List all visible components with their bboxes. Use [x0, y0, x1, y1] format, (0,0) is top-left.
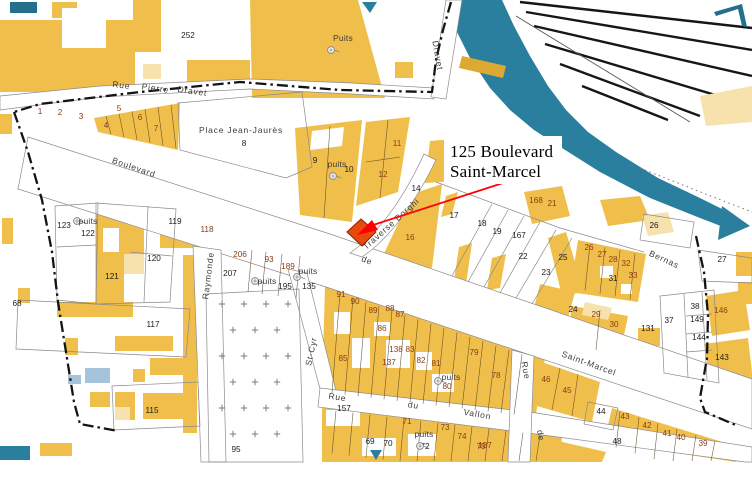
- parcel-number: 137: [382, 358, 396, 367]
- parcel-number: 131: [641, 324, 655, 333]
- parcel-number: 40: [676, 433, 686, 442]
- parcel-number: 1: [38, 107, 43, 116]
- water-triangle: [362, 2, 377, 13]
- parcel-number: 24: [568, 305, 578, 314]
- parcel-number: 143: [715, 353, 729, 362]
- parcel-number: 12: [378, 170, 388, 179]
- parcel-number: 138: [389, 345, 403, 354]
- parcel-number: 6: [138, 113, 143, 122]
- parcel-number: 48: [612, 437, 622, 446]
- parcel-number: 167: [512, 231, 526, 240]
- parcel-number: 69: [365, 437, 375, 446]
- parcel-number: 27: [717, 255, 727, 264]
- parcel-number: 9: [313, 156, 318, 165]
- parcel-number: 5: [117, 104, 122, 113]
- parcel-number: 123: [57, 221, 71, 230]
- parcel-number: 30: [609, 320, 619, 329]
- parcel-number: 45: [562, 386, 572, 395]
- well-label: Puits: [333, 33, 353, 43]
- parcel-number: 80: [442, 382, 452, 391]
- parcel-number: 46: [541, 375, 551, 384]
- street-label: de: [535, 429, 547, 442]
- parcel-number: 8: [242, 139, 247, 148]
- parcel-number: 21: [547, 199, 557, 208]
- parcel-number: 87: [395, 310, 405, 319]
- parcel-number: 37: [664, 316, 674, 325]
- map-page: 2521234567891011121314161718191671682122…: [0, 0, 752, 484]
- parcel-number: 31: [608, 274, 618, 283]
- parcel-number: 207: [223, 269, 237, 278]
- well-symbol: puits: [252, 276, 277, 286]
- block-11-12: [356, 117, 410, 206]
- parcel-number: 26: [649, 221, 659, 230]
- parcel-number: 44: [596, 407, 606, 416]
- parcel-number: 70: [383, 439, 393, 448]
- annotation-text-line1: 125 Boulevard: [450, 142, 553, 161]
- parcel-number: 32: [621, 259, 631, 268]
- parcel-number: 33: [628, 271, 638, 280]
- parcel-number: 115: [145, 406, 158, 415]
- parcel-number: 89: [368, 306, 378, 315]
- parcel-number: 29: [591, 310, 601, 319]
- street-label: du: [407, 399, 419, 411]
- parcel-number: 119: [168, 217, 181, 226]
- parcel-number: 26: [584, 243, 594, 252]
- parcel-number: 4: [104, 121, 109, 130]
- parcel-number: 157: [337, 404, 351, 413]
- parcel-number: 68: [12, 299, 22, 308]
- parcel-number: 144: [692, 333, 706, 342]
- parcel-number: 93: [264, 255, 274, 264]
- cemetery-crosses: [219, 301, 291, 437]
- annotation-text-line2: Saint-Marcel: [450, 162, 541, 181]
- parcel-number: 118: [200, 225, 213, 234]
- parcel-number: 117: [146, 320, 159, 329]
- parcel-number: 18: [477, 219, 487, 228]
- parcel-number: 19: [492, 227, 502, 236]
- parcel-number: 90: [350, 297, 360, 306]
- well-label: puits: [79, 216, 98, 226]
- parcel-number: 17: [449, 211, 459, 220]
- parcel-number: 78: [491, 371, 501, 380]
- parcel-number: 2: [58, 108, 63, 117]
- parcel-number: 146: [714, 306, 728, 315]
- parcel-number: 79: [469, 348, 479, 357]
- parcel-number: 28: [608, 255, 618, 264]
- parcel-number: 22: [518, 252, 528, 261]
- well-label: puits: [328, 159, 347, 169]
- parcel-number: 43: [620, 412, 630, 421]
- river-flow-arrow-icon: [718, 206, 750, 240]
- parcel-number: 83: [405, 345, 415, 354]
- place-jean-jaures-outline: [178, 92, 312, 178]
- parcel-number: 27: [597, 250, 607, 259]
- parcel-number: 38: [690, 302, 700, 311]
- parcel-number: 88: [385, 304, 395, 313]
- parcel-number: 82: [416, 356, 426, 365]
- pond: [85, 368, 110, 383]
- canal-river-water: [447, 0, 726, 228]
- well-symbol: puits: [74, 216, 98, 226]
- parcel-number: 122: [81, 229, 95, 238]
- parcel-number: 195: [278, 282, 292, 291]
- parcel-number: 41: [662, 429, 672, 438]
- street-label: Bernas: [648, 248, 681, 270]
- parcel-number: 11: [393, 139, 402, 148]
- parcel-number: 86: [377, 324, 387, 333]
- parcel-number: 25: [558, 253, 568, 262]
- parcel-number: 73: [440, 423, 450, 432]
- parcel-number: 189: [281, 262, 295, 271]
- parcel-number: 42: [642, 421, 652, 430]
- parcel-number: 206: [233, 250, 247, 259]
- street-label: Place Jean-Jaurès: [199, 125, 283, 135]
- parcel-number: 71: [402, 417, 412, 426]
- parcel-number: 23: [541, 268, 551, 277]
- parcel-number: 3: [79, 112, 84, 121]
- parcel-number: 85: [338, 354, 348, 363]
- parcel-number: 95: [231, 445, 241, 454]
- well-label: puits: [258, 276, 277, 286]
- well-label: puits: [415, 429, 434, 439]
- parcel-number: 135: [302, 282, 316, 291]
- parcel-number: 149: [690, 315, 704, 324]
- cadastral-map: 2521234567891011121314161718191671682122…: [0, 0, 752, 484]
- parcel-number: 81: [431, 359, 441, 368]
- parcel-number: 252: [181, 31, 195, 40]
- corner-water: [0, 446, 30, 460]
- parcel-number: 74: [457, 432, 467, 441]
- parcel-number: 120: [147, 254, 161, 263]
- parcel-number: 16: [405, 233, 415, 242]
- well-label: puits: [442, 372, 461, 382]
- parcel-number: 7: [154, 124, 159, 133]
- parcel-number: 187: [478, 441, 492, 450]
- parcel-number: 14: [411, 184, 421, 193]
- well-label: puits: [299, 266, 318, 276]
- parcel-number: 121: [105, 272, 119, 281]
- parcel-number: 39: [698, 439, 708, 448]
- water-basin: [10, 2, 37, 13]
- parcel-number: 168: [529, 196, 543, 205]
- parcel-number: 91: [336, 290, 346, 299]
